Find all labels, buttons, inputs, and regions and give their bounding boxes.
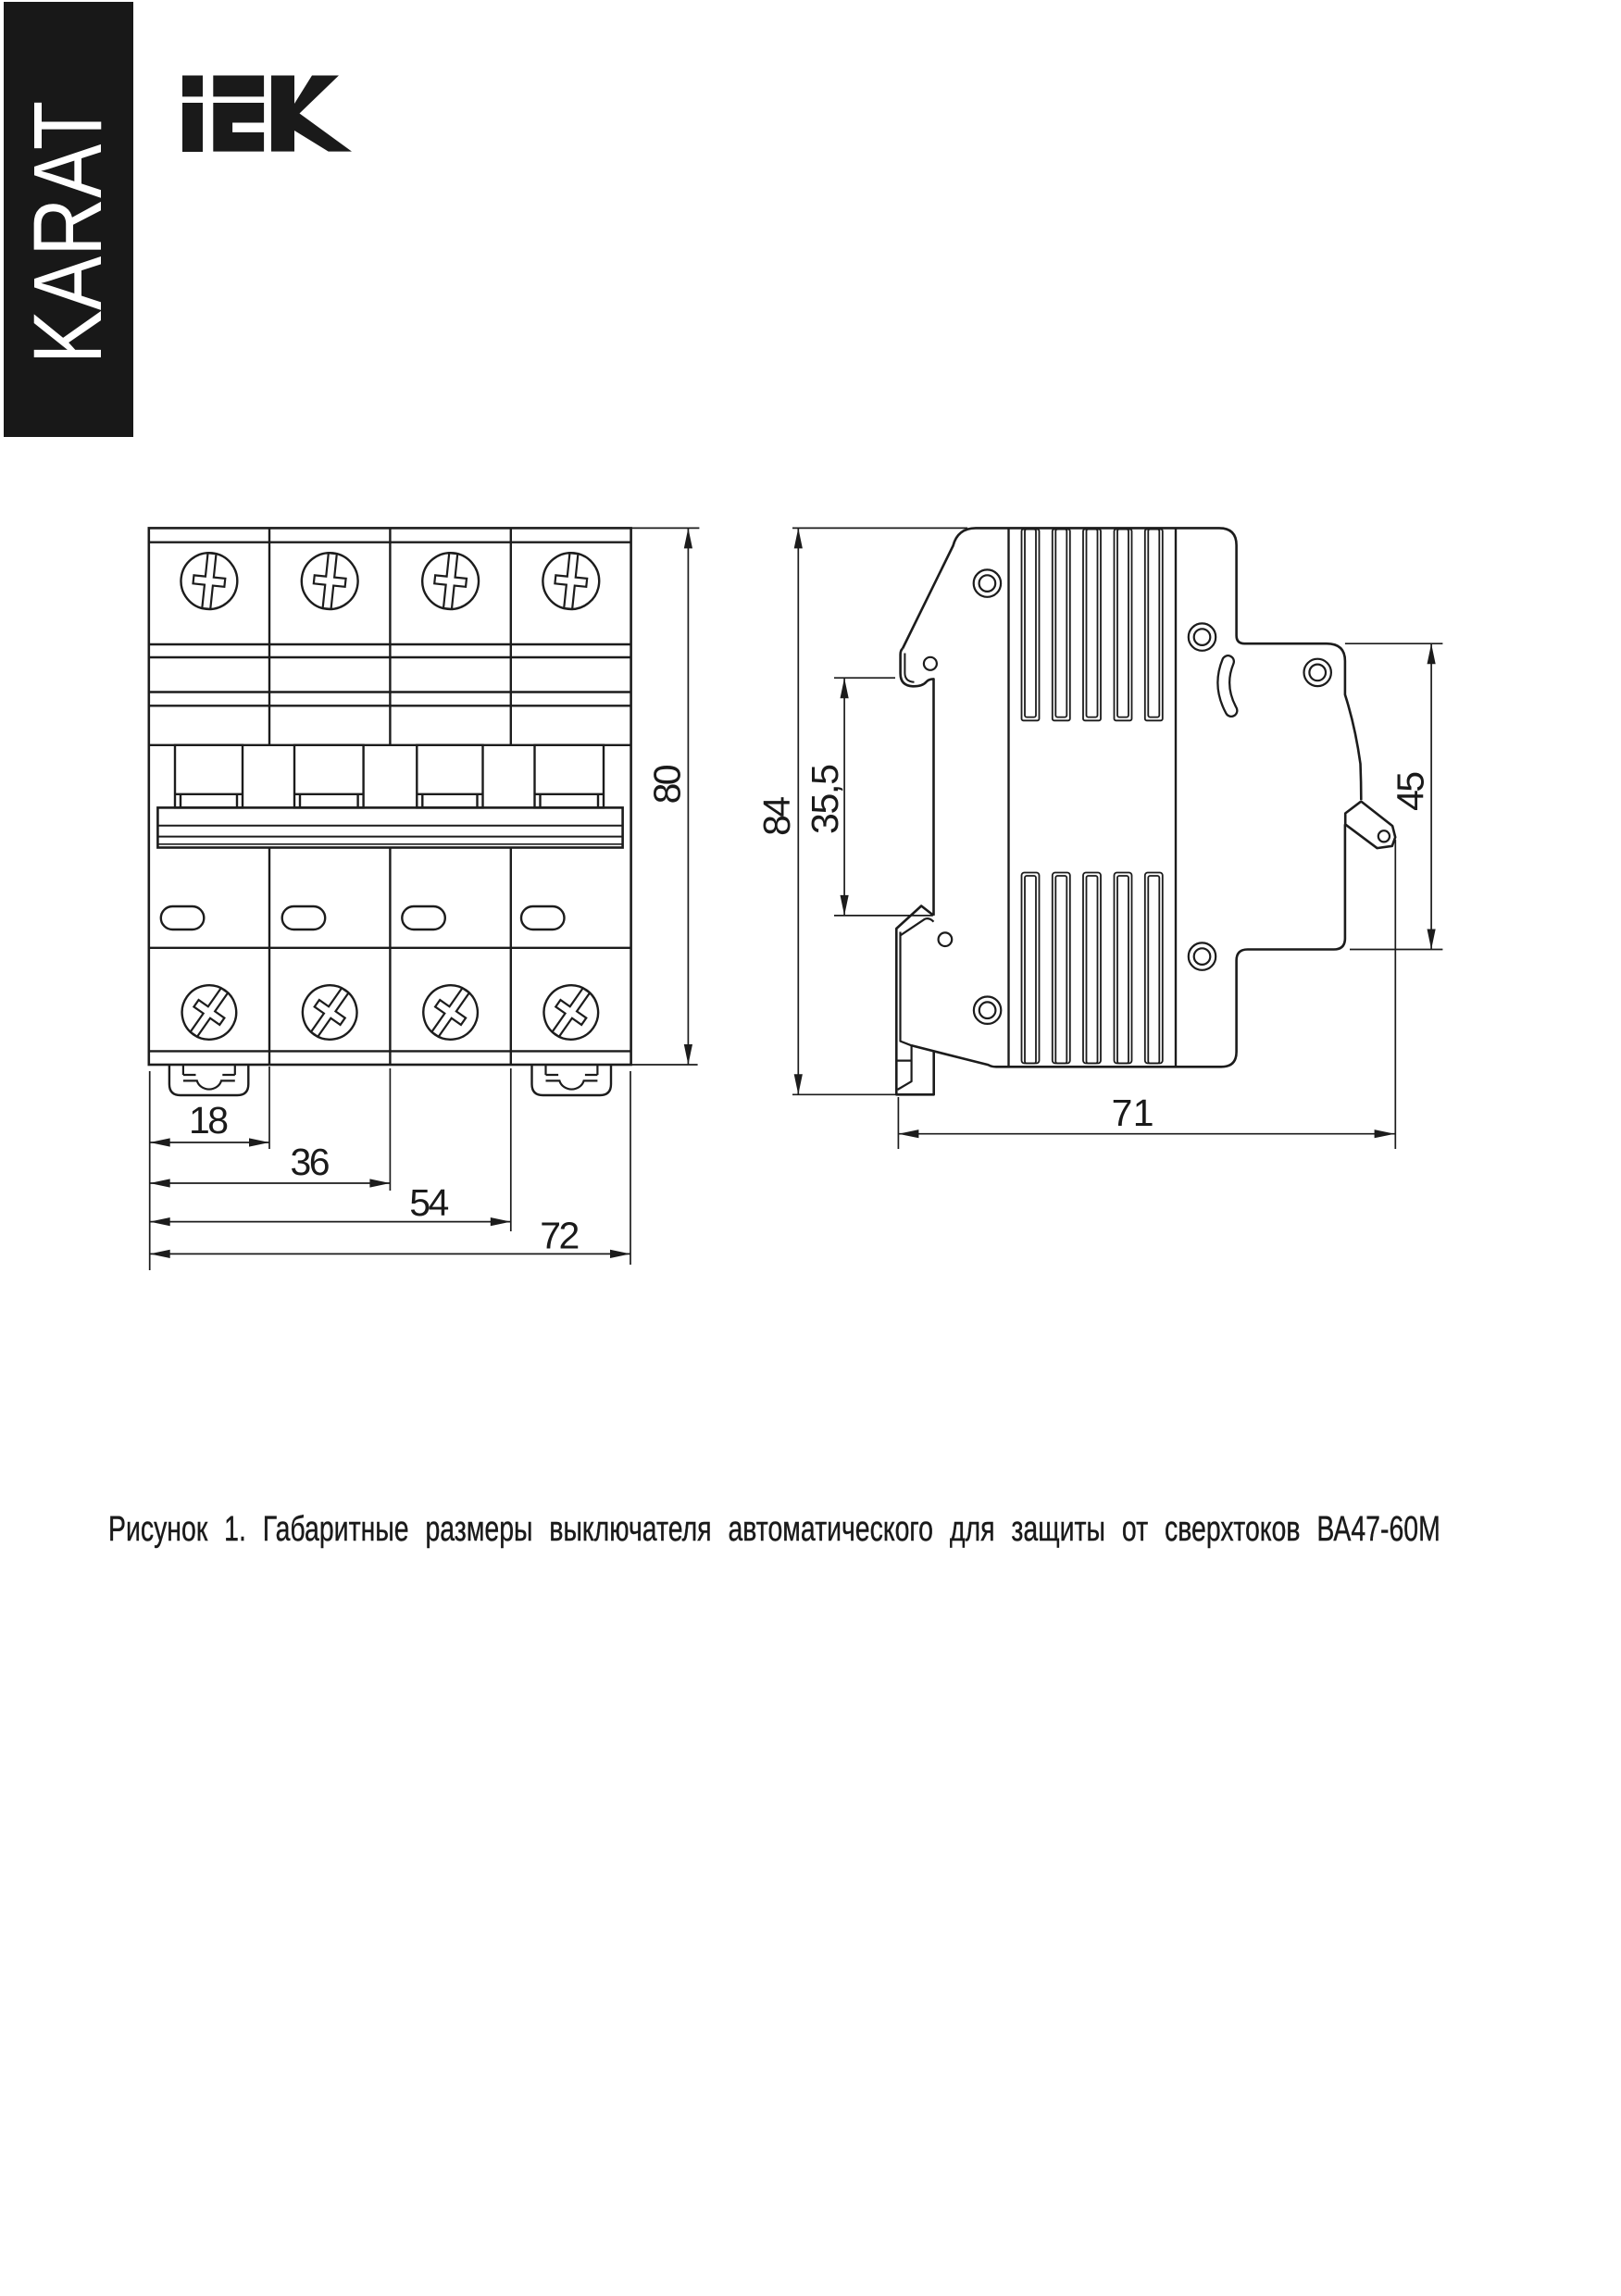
svg-text:36: 36 <box>291 1141 330 1183</box>
svg-text:35,5: 35,5 <box>804 764 846 834</box>
svg-text:71: 71 <box>1112 1092 1154 1134</box>
svg-text:80: 80 <box>646 764 689 804</box>
svg-text:84: 84 <box>755 796 798 836</box>
svg-text:45: 45 <box>1390 771 1432 811</box>
svg-text:54: 54 <box>409 1181 449 1224</box>
svg-text:72: 72 <box>540 1215 580 1257</box>
svg-text:18: 18 <box>189 1099 229 1142</box>
